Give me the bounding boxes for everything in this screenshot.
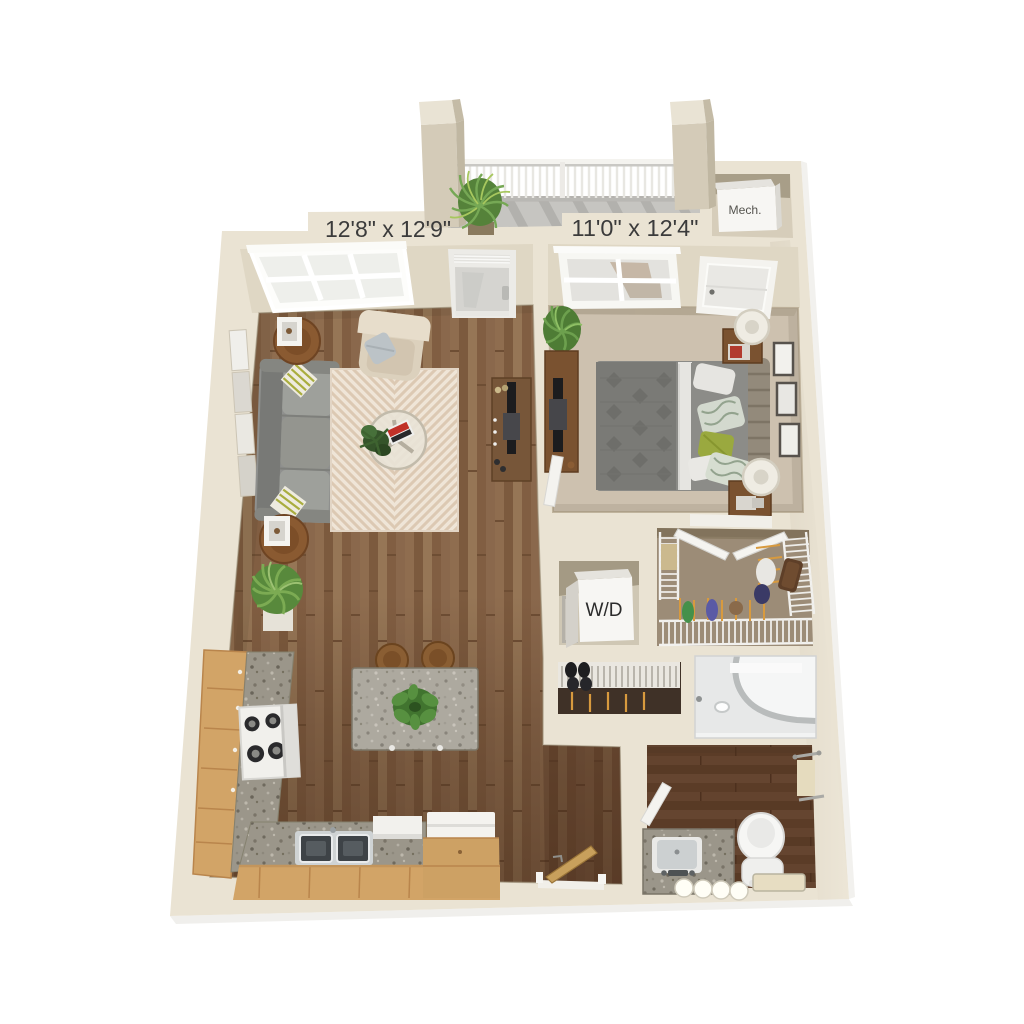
svg-text:W/D: W/D — [586, 600, 623, 621]
svg-text:11'0" x 12'4": 11'0" x 12'4" — [572, 215, 699, 241]
svg-text:12'8" x 12'9": 12'8" x 12'9" — [325, 216, 451, 242]
svg-text:Mech.: Mech. — [729, 203, 762, 217]
